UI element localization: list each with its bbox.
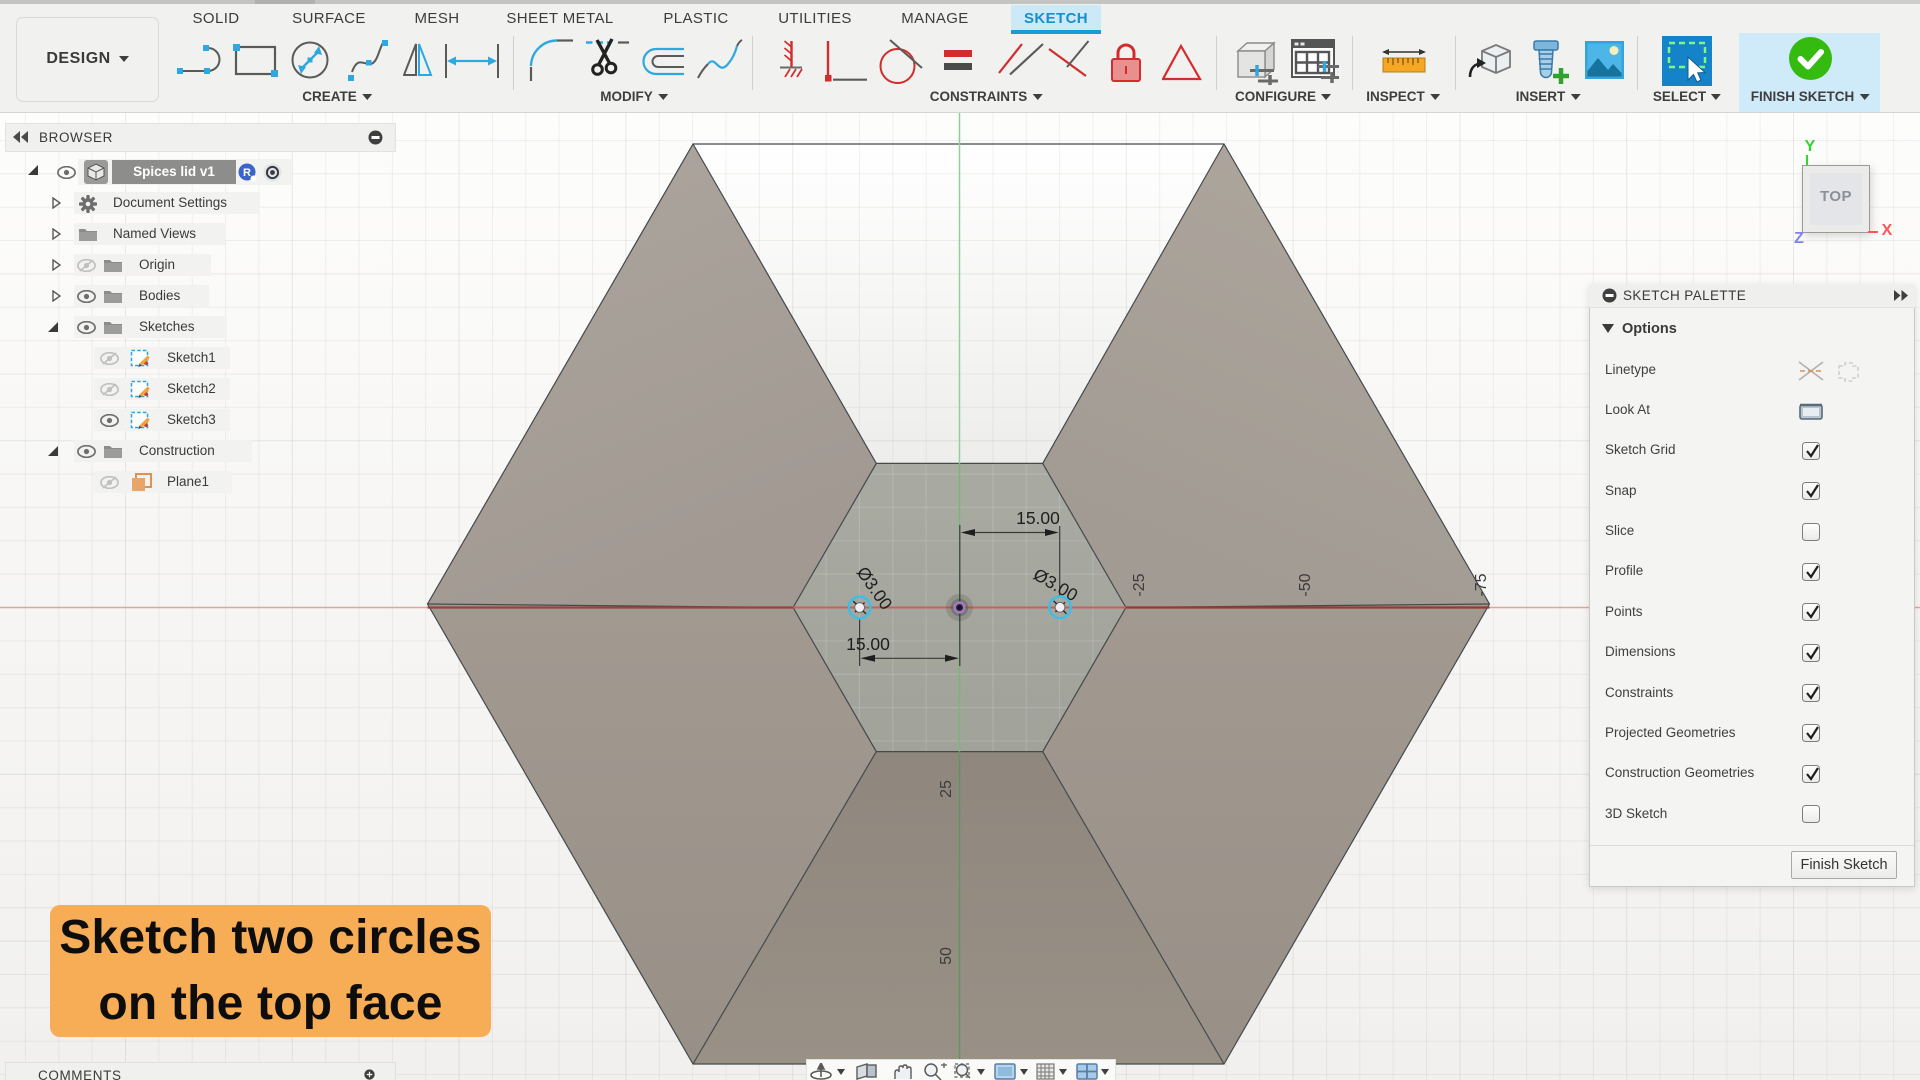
svg-text:15.00: 15.00 <box>846 634 890 654</box>
svg-text:R: R <box>243 167 251 179</box>
svg-text:25: 25 <box>938 780 955 798</box>
svg-text:-75: -75 <box>1473 573 1490 596</box>
svg-text:15.00: 15.00 <box>1016 508 1060 528</box>
svg-text:-50: -50 <box>1297 573 1314 596</box>
svg-text:50: 50 <box>938 947 955 965</box>
svg-text:-25: -25 <box>1131 573 1148 596</box>
